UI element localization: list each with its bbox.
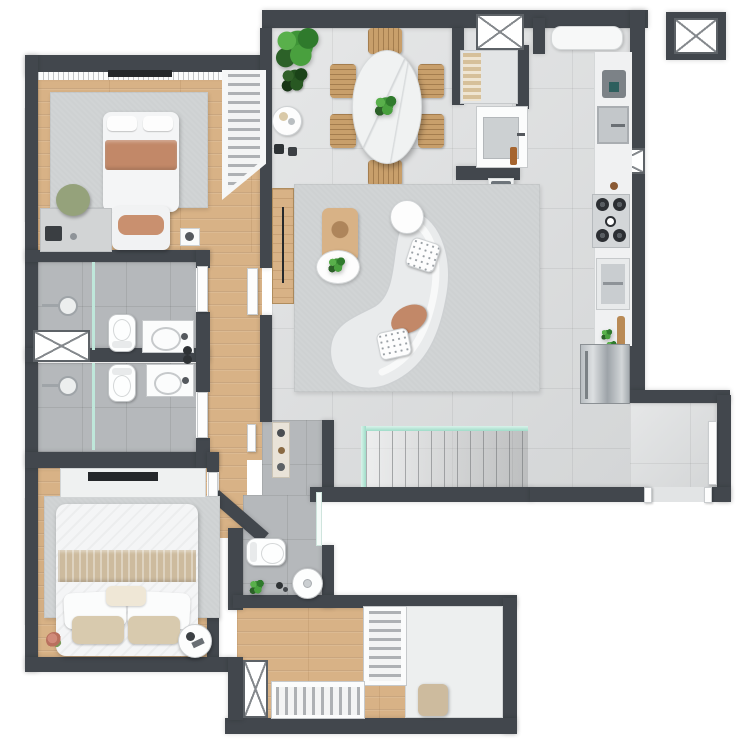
basin-bottle [510, 147, 517, 165]
dining-chair-right2 [418, 114, 444, 148]
lavatory-glass-partition [316, 492, 322, 546]
bed1-salmon-throw [105, 140, 177, 170]
wall-bathrooms-right-b [196, 312, 210, 392]
wall-bathrooms-bottom [25, 452, 219, 468]
toilet-tank [112, 341, 132, 348]
kitchen-window-bench [551, 26, 623, 50]
vanity-basin [154, 372, 182, 395]
toilet-tank [112, 368, 132, 375]
shelf-item [278, 447, 285, 454]
wall-corridor-bottom-left [530, 487, 650, 502]
lavatory-soap2 [283, 587, 288, 592]
side-table-cup [279, 112, 288, 121]
toilet-lid [113, 319, 131, 341]
toilet-lid [261, 543, 284, 564]
bar-item-dark2 [288, 147, 297, 156]
stairs-railing-left [361, 426, 366, 487]
lavatory-soap [276, 582, 283, 589]
wall-closet-right [503, 598, 517, 734]
rear-corridor-floor [630, 403, 718, 487]
door-bathroom1 [197, 266, 208, 312]
side-table-cup2 [288, 118, 295, 125]
bathroom2-toilet [108, 364, 136, 402]
dining-side-table [272, 106, 302, 136]
side-table-decor [186, 632, 195, 641]
wall-corridor-bottom-right [710, 487, 731, 502]
kitchen-sink [597, 106, 629, 144]
desk-mug [70, 233, 77, 240]
staircase-steps [366, 431, 528, 487]
vanity-basin [151, 327, 181, 351]
floor-plan-canvas: { "meta": { "kind": "apartment-floor-pla… [0, 0, 744, 744]
bathroom2-shower-head [58, 376, 78, 396]
toilet-lid [113, 375, 131, 397]
closet-ottoman [418, 684, 448, 716]
shelf-item [277, 429, 285, 437]
bed2-pillow-beige-left [72, 616, 124, 644]
kitchen-decor [610, 182, 618, 190]
wall-closet-left-column [228, 657, 243, 720]
bathroom2-shower-glass [92, 363, 95, 450]
pedestal-sink-drain [303, 579, 312, 588]
bathroom1-shower-arm [42, 304, 60, 307]
toilet-tank [250, 542, 257, 562]
fridge-handle [585, 351, 588, 399]
wall-closet-bottom [225, 718, 517, 734]
bedroom2-flower-pot [46, 632, 62, 648]
bedroom2-tv [88, 472, 158, 481]
lavatory-toilet [246, 538, 286, 566]
oven-handle [603, 282, 623, 285]
vanity-faucet [182, 377, 189, 384]
door-corridor [708, 421, 717, 485]
bathroom1-shower-head [58, 296, 78, 316]
entry-washbasin [476, 106, 528, 168]
shaft-bathrooms-icon [33, 330, 90, 362]
desk-laptop [45, 226, 62, 241]
wardrobe-hanging-clothes [369, 611, 401, 681]
closet-wardrobe-horizontal [271, 681, 365, 719]
bathroom1-toilet [108, 314, 136, 352]
oven-under-counter [596, 258, 630, 310]
bed1-pillow-right [143, 116, 173, 131]
bed2-cushion-small [106, 586, 146, 606]
wall-living-left-lower [260, 315, 272, 422]
shelf-item [277, 463, 285, 471]
bedroom1-tv [108, 70, 172, 77]
bed1-pillow-left [107, 116, 137, 131]
elevator-shaft-icon [674, 18, 718, 54]
sink-faucet [611, 124, 625, 127]
bench1-salmon-pillow [118, 215, 164, 235]
wardrobe-hanging-clothes [276, 687, 360, 715]
wall-corridor-top [630, 390, 730, 403]
sofa-side-table [390, 200, 424, 234]
dining-chair-right1 [418, 64, 444, 98]
door-lavatory [247, 424, 256, 452]
fridge [580, 344, 630, 404]
wall-left-exterior [25, 55, 38, 672]
stove-center-knob [605, 216, 616, 227]
closet-wardrobe-vertical [363, 606, 407, 686]
lavatory-plant-icon [248, 578, 266, 596]
fiddle-leaf-plant-icon [270, 24, 326, 72]
gas-stove [592, 194, 630, 248]
coffee-machine-screen [609, 82, 619, 92]
door-living-hallway [247, 268, 258, 315]
wall-stairs-bottom [310, 487, 532, 502]
small-dark-plant-icon [278, 66, 312, 94]
door-post-right [704, 487, 712, 503]
vanity-faucet [181, 333, 188, 340]
wall-corridor-right [717, 395, 731, 502]
wall-bedroom2-right-upper [207, 452, 219, 472]
bathroom2-vanity [146, 364, 194, 397]
bed2-pillow-beige-right [128, 616, 180, 644]
door-post-left [644, 487, 652, 503]
burner-icon [613, 229, 626, 242]
wall-kitchen-right [630, 10, 645, 390]
burner-icon [596, 198, 609, 211]
bench-slats [463, 53, 481, 101]
bathroom1-shower-glass [92, 262, 95, 350]
basin-faucet [517, 133, 525, 136]
nightstand-lamp [185, 232, 194, 241]
wall-kitchen-entry-divider [533, 18, 545, 54]
coffee-machine [602, 70, 626, 98]
sideboard-handle [282, 207, 284, 283]
burner-icon [596, 229, 609, 242]
shaft-entry-icon [476, 14, 524, 50]
wall-bedroom2-bottom [25, 657, 230, 672]
burner-icon [613, 198, 626, 211]
living-sideboard [272, 188, 294, 304]
bathroom1-soap [183, 346, 192, 355]
stairs-railing-top [361, 426, 528, 431]
door-bathroom2 [197, 392, 208, 438]
bed2-beige-throw [58, 550, 196, 582]
entry-bench [460, 50, 518, 104]
lavatory-shelf [272, 422, 290, 478]
bedroom1-chair [56, 184, 90, 216]
wall-lavatory-right-upper [322, 420, 334, 492]
bar-item-dark1 [274, 144, 284, 154]
table-centerpiece-icon [372, 94, 400, 118]
shaft-closet-icon [243, 660, 268, 718]
bathroom2-shower-arm [42, 384, 60, 387]
corridor-door-gap-floor [650, 487, 704, 502]
bathroom2-soap [183, 355, 192, 364]
